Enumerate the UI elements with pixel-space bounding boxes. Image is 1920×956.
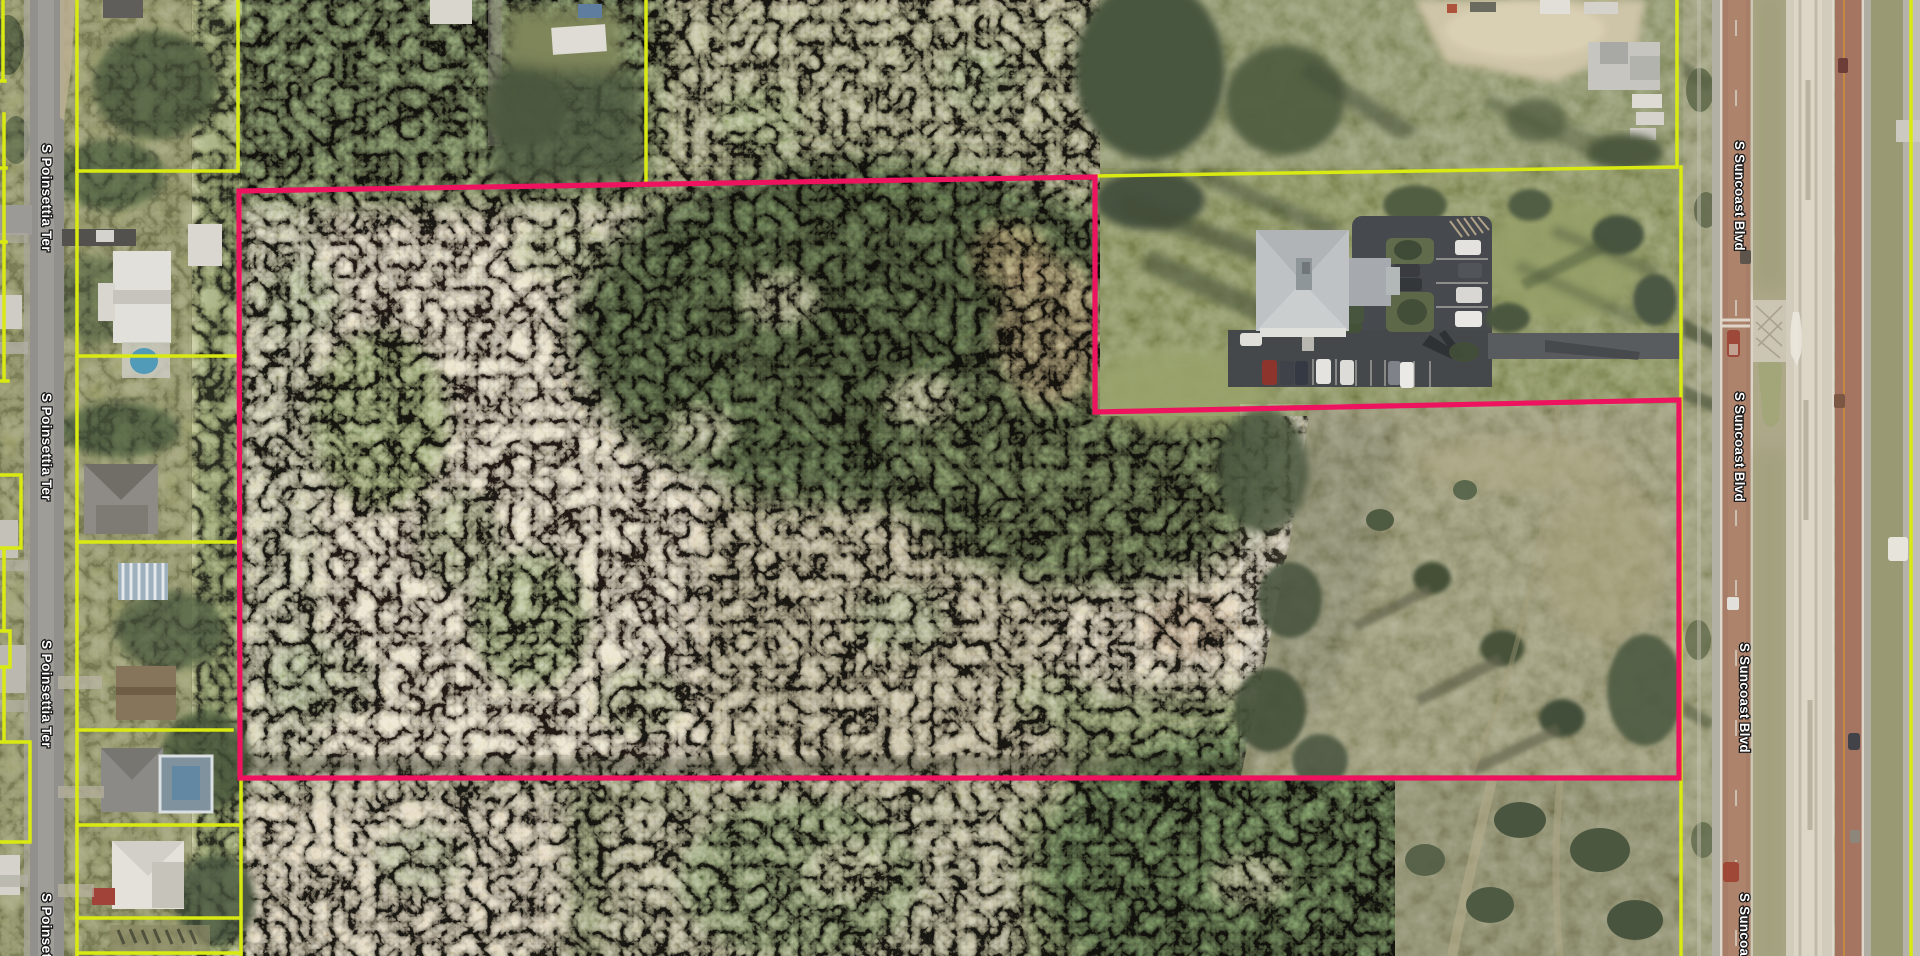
svg-text:S Suncoast Blvd: S Suncoast Blvd bbox=[1732, 141, 1747, 251]
svg-text:S Suncoast Blvd: S Suncoast Blvd bbox=[1737, 893, 1752, 956]
svg-text:S Poinsettia Ter: S Poinsettia Ter bbox=[39, 144, 54, 252]
svg-text:S Poinsettia Ter: S Poinsettia Ter bbox=[39, 893, 54, 956]
svg-text:S Poinsettia Ter: S Poinsettia Ter bbox=[39, 640, 54, 748]
svg-text:S Poinsettia Ter: S Poinsettia Ter bbox=[39, 393, 54, 501]
svg-text:S Suncoast Blvd: S Suncoast Blvd bbox=[1732, 392, 1747, 502]
svg-text:S Suncoast Blvd: S Suncoast Blvd bbox=[1737, 643, 1752, 753]
